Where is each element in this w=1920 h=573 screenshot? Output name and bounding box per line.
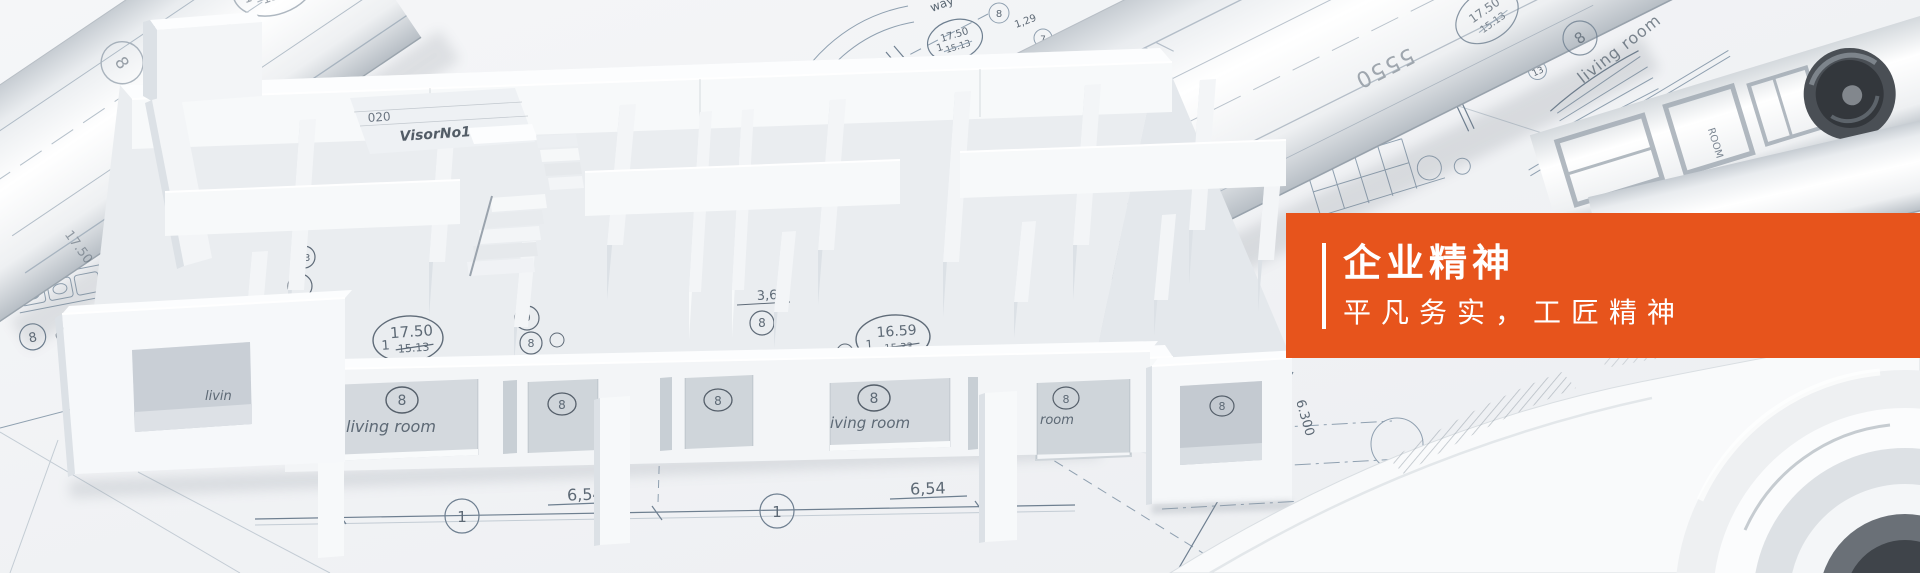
- leftblock-livin-label: livin: [205, 389, 232, 404]
- floor-circle-8a: 8: [528, 337, 535, 350]
- slogan-subtitle: 平凡务实，工匠精神: [1343, 298, 1685, 328]
- window3-circle-8: 8: [714, 394, 722, 408]
- slogan-accent-bar: [1322, 243, 1326, 329]
- window1-living-room: living room: [346, 417, 436, 436]
- visor-020-label: 020: [367, 109, 391, 125]
- floor-dim-1750: 17.50: [389, 321, 433, 342]
- axis-circle-1: 1: [457, 508, 467, 526]
- slogan-title: 企业精神: [1343, 244, 1685, 282]
- axis-circle-1b: 1: [772, 503, 782, 521]
- dim-6-54-b: 6,54: [910, 478, 946, 498]
- window4-living-room: iving room: [830, 414, 910, 432]
- hero-banner: 8 chen 1.25 8.4 1 1 6,54 6,54: [0, 0, 1920, 573]
- floor-dim-1659: 16.59: [876, 322, 917, 341]
- floor-circle-1: 1: [381, 338, 390, 354]
- floor-dim-1513: 15.13: [397, 341, 429, 356]
- model-left-end-block: livin: [55, 290, 352, 477]
- slogan-text-block: 企业精神 平凡务实，工匠精神: [1343, 244, 1685, 328]
- window1-circle-8: 8: [398, 393, 407, 409]
- window5-circle-8: 8: [1063, 393, 1070, 406]
- window5-room: room: [1040, 413, 1074, 428]
- floor-circle-8b: 8: [758, 316, 766, 330]
- model-right-end-block: 8: [1146, 350, 1298, 514]
- window4-circle-8: 8: [870, 391, 879, 407]
- window2-circle-8: 8: [558, 398, 566, 412]
- rightblock-circle-8: 8: [1219, 400, 1226, 413]
- slogan-panel: 企业精神 平凡务实，工匠精神: [1286, 213, 1920, 358]
- top-circle-8: 8: [996, 9, 1002, 20]
